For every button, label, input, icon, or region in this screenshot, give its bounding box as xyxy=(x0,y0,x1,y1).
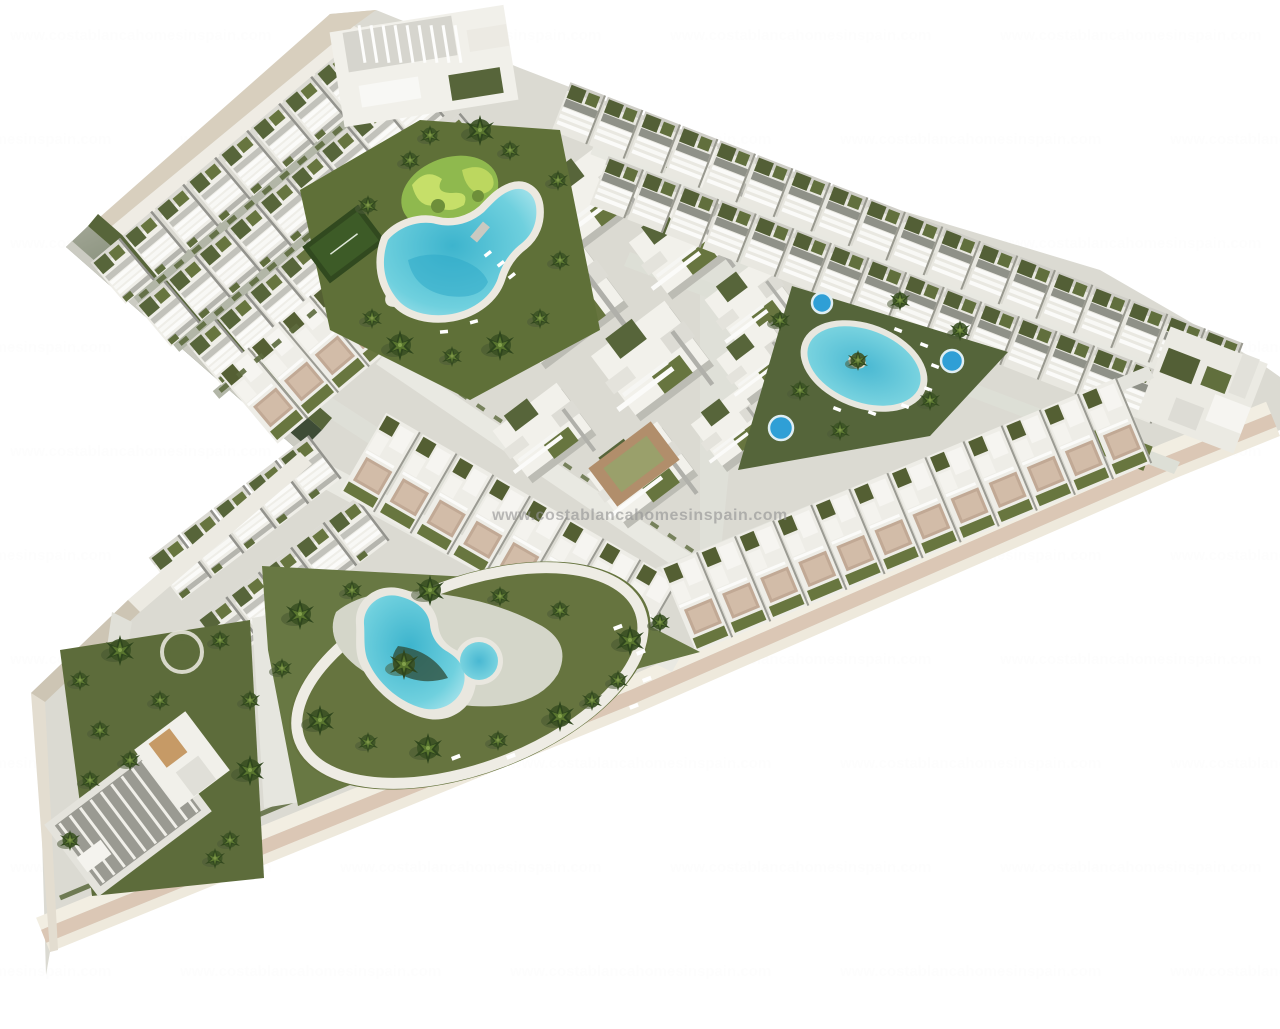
svg-text:www.costablancahomesinspain.co: www.costablancahomesinspain.com xyxy=(999,651,1261,668)
svg-text:www.costablancahomesinspain.co: www.costablancahomesinspain.com xyxy=(0,131,111,148)
svg-text:www.costablancahomesinspain.co: www.costablancahomesinspain.com xyxy=(9,27,271,44)
svg-text:www.costablancahomesinspain.co: www.costablancahomesinspain.com xyxy=(999,27,1261,44)
svg-text:www.costablancahomesinspain.co: www.costablancahomesinspain.com xyxy=(9,443,271,460)
svg-text:www.costablancahomesinspain.co: www.costablancahomesinspain.com xyxy=(839,755,1101,772)
svg-text:www.costablancahomesinspain.co: www.costablancahomesinspain.com xyxy=(179,963,441,980)
svg-text:www.costablancahomesinspain.co: www.costablancahomesinspain.com xyxy=(999,235,1261,252)
svg-text:www.costablancahomesinspain.co: www.costablancahomesinspain.com xyxy=(509,755,771,772)
svg-text:www.costablancahomesinspain.co: www.costablancahomesinspain.com xyxy=(1169,963,1280,980)
svg-text:www.costablancahomesinspain.co: www.costablancahomesinspain.com xyxy=(339,859,601,876)
svg-text:www.costablancahomesinspain.co: www.costablancahomesinspain.com xyxy=(1169,131,1280,148)
svg-text:www.costablancahomesinspain.co: www.costablancahomesinspain.com xyxy=(509,963,771,980)
svg-text:www.costablancahomesinspain.co: www.costablancahomesinspain.com xyxy=(669,859,931,876)
svg-text:www.costablancahomesinspain.co: www.costablancahomesinspain.com xyxy=(1169,755,1280,772)
svg-text:www.costablancahomesinspain.co: www.costablancahomesinspain.com xyxy=(0,547,111,564)
svg-text:www.costablancahomesinspain.co: www.costablancahomesinspain.com xyxy=(999,859,1261,876)
svg-text:www.costablancahomesinspain.co: www.costablancahomesinspain.com xyxy=(839,963,1101,980)
svg-text:www.costablancahomesinspain.co: www.costablancahomesinspain.com xyxy=(0,963,111,980)
svg-text:www.costablancahomesinspain.co: www.costablancahomesinspain.com xyxy=(669,27,931,44)
svg-text:www.costablancahomesinspain.co: www.costablancahomesinspain.com xyxy=(491,507,788,524)
svg-text:www.costablancahomesinspain.co: www.costablancahomesinspain.com xyxy=(0,339,111,356)
svg-text:www.costablancahomesinspain.co: www.costablancahomesinspain.com xyxy=(839,131,1101,148)
svg-text:www.costablancahomesinspain.co: www.costablancahomesinspain.com xyxy=(1169,547,1280,564)
